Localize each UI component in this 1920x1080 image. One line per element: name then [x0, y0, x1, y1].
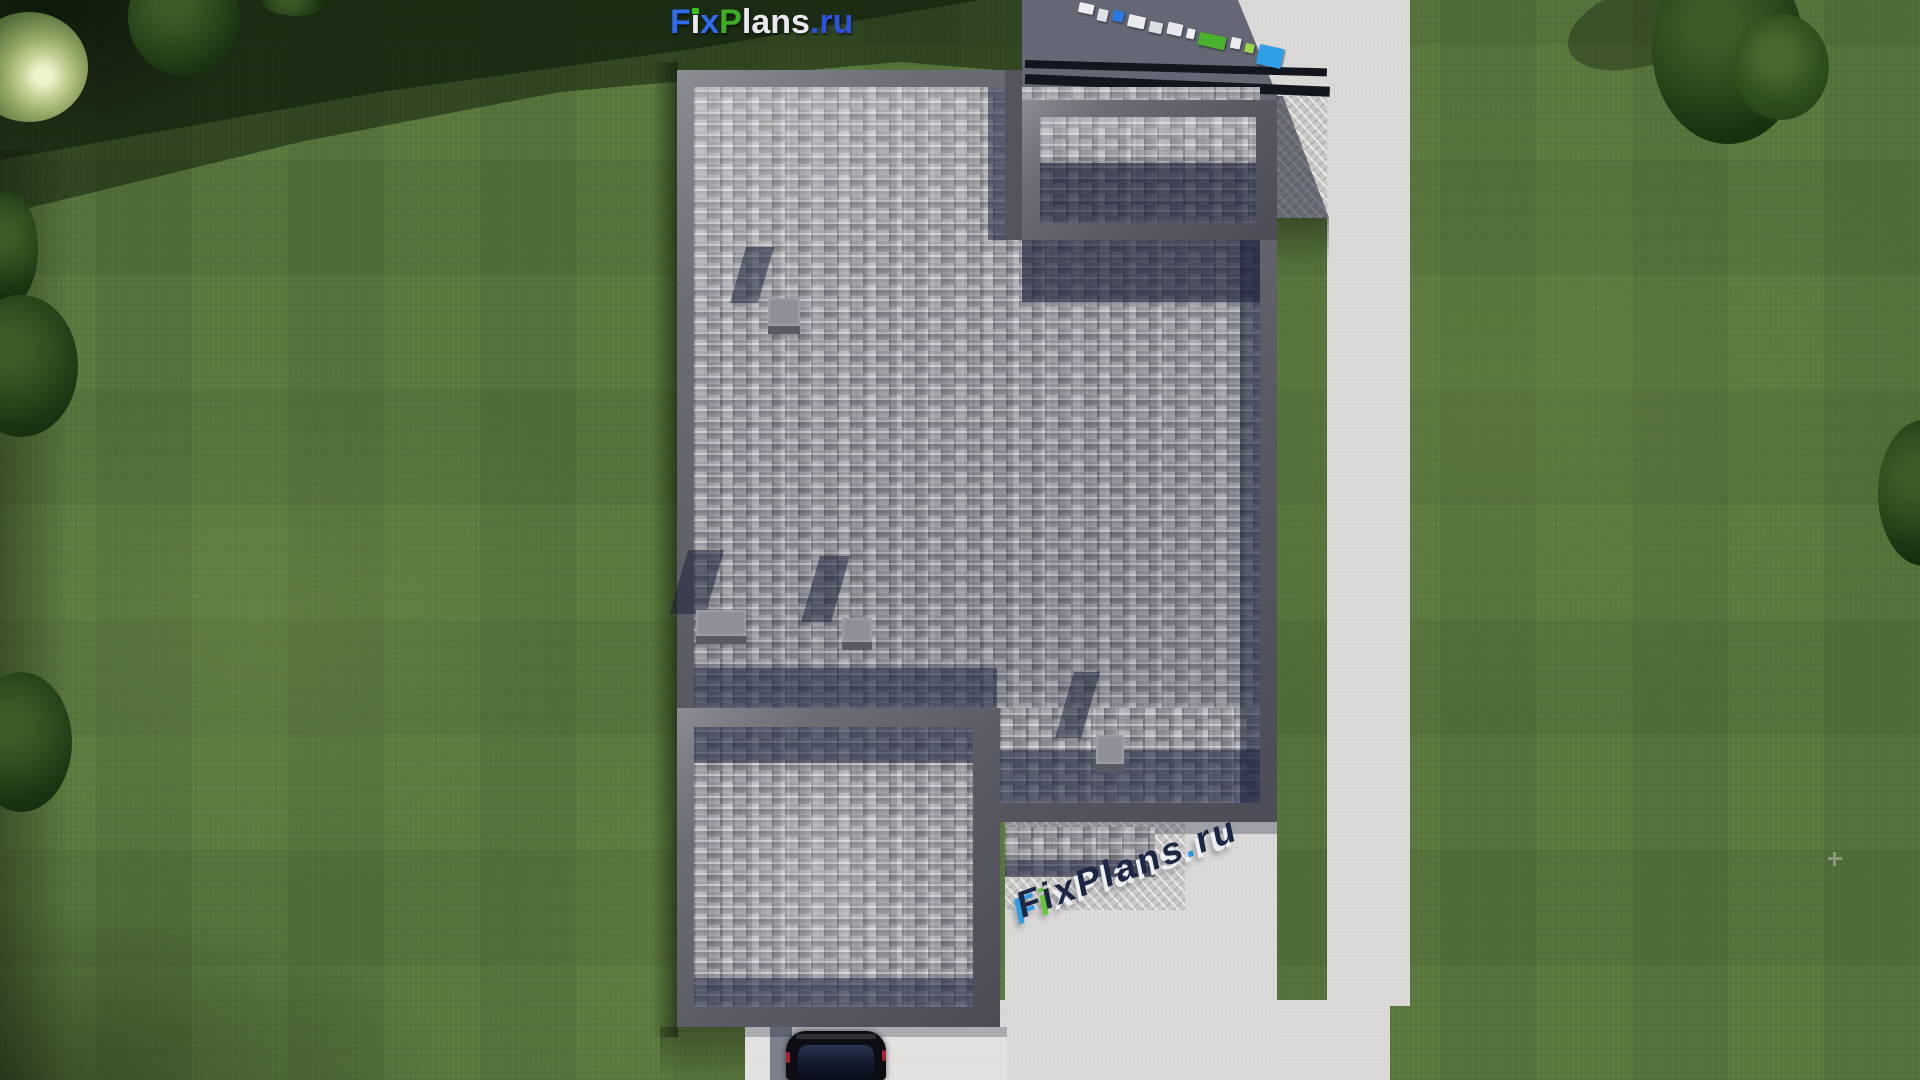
logo-letter-f: F	[670, 3, 691, 41]
car	[786, 1031, 886, 1080]
car-taillight-right	[882, 1050, 886, 1061]
letter-block	[1148, 21, 1163, 35]
car-windshield	[798, 1045, 874, 1080]
letter-block	[1230, 37, 1242, 50]
shadow-on-grass-strip	[1277, 218, 1329, 264]
shadow-step-wall	[988, 87, 1005, 240]
letter-block	[1112, 10, 1125, 23]
roof-lighting-lower-left	[694, 727, 973, 1007]
logo-letters-lans: lans	[742, 3, 810, 41]
logo-letter-p: P	[719, 3, 742, 41]
plus-marker-v	[1833, 852, 1836, 866]
plus-marker	[1828, 852, 1842, 866]
tree-topright-2	[1733, 14, 1829, 120]
chimney-3	[842, 618, 872, 650]
logo-letters-ru: .ru	[810, 3, 853, 41]
letter-block	[1127, 14, 1146, 29]
house-shadow-west	[652, 62, 678, 1037]
shadow-right-section-bottom	[1000, 750, 1260, 803]
letter-block	[1186, 28, 1196, 39]
shadow-lowerleft-bottom	[694, 978, 973, 1007]
logo-i-dot-green	[692, 8, 699, 14]
car-taillight-left	[786, 1052, 790, 1063]
car-roof-glint	[796, 1034, 876, 1039]
letter-block	[1096, 8, 1108, 22]
shadow-below-annex	[1022, 240, 1260, 302]
letter-block	[1078, 2, 1095, 15]
chimney-4	[1096, 735, 1124, 772]
chimney-1	[768, 298, 800, 334]
fixplans-logo: FixPlans.ru	[670, 3, 890, 45]
aerial-house-render: FixPlans.ru FixPlans.ru	[0, 0, 1920, 1080]
garden-path	[1327, 96, 1410, 1006]
letter-block	[1198, 32, 1227, 51]
shadow-above-divider	[694, 668, 997, 708]
letter-block	[1244, 43, 1255, 54]
chimney-2	[696, 610, 746, 644]
letter-block	[1166, 22, 1183, 37]
shadow-annex-inner	[1040, 163, 1256, 223]
logo-letter-x: x	[700, 3, 719, 41]
shadow-lowerleft-top	[694, 727, 973, 763]
bush-right-edge	[1878, 420, 1920, 566]
roof-step-wall	[1005, 70, 1022, 240]
shadow-right-parapet	[1240, 240, 1260, 803]
